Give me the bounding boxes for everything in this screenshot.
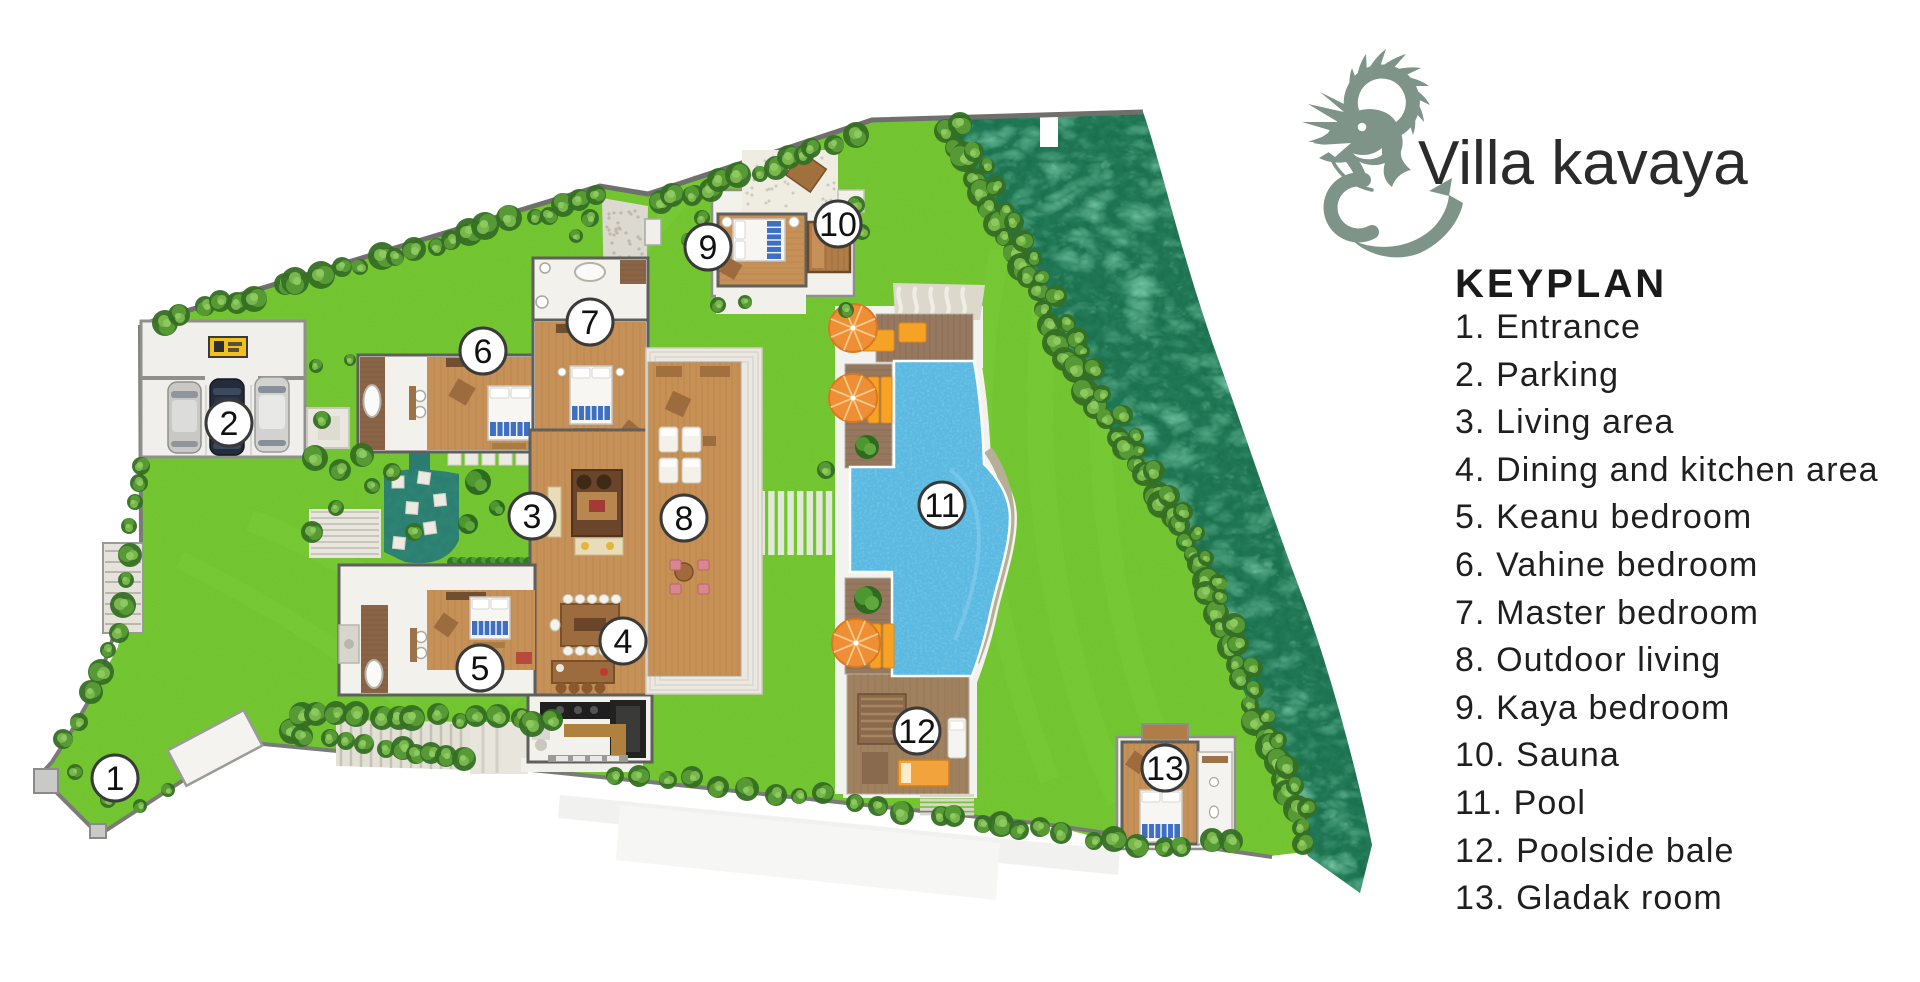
svg-text:4. Dining and kitchen area: 4. Dining and kitchen area [1455, 451, 1879, 489]
svg-text:1: 1 [106, 760, 125, 798]
svg-text:12: 12 [898, 713, 936, 751]
svg-text:11: 11 [924, 487, 959, 525]
svg-text:5. Keanu bedroom: 5. Keanu bedroom [1455, 498, 1752, 536]
svg-text:10. Sauna: 10. Sauna [1455, 736, 1620, 774]
svg-text:4: 4 [614, 623, 633, 661]
svg-text:3. Living area: 3. Living area [1455, 403, 1675, 441]
svg-text:12. Poolside bale: 12. Poolside bale [1455, 832, 1735, 870]
svg-text:KEYPLAN: KEYPLAN [1455, 262, 1667, 306]
svg-text:1. Entrance: 1. Entrance [1455, 308, 1641, 346]
svg-text:Villa kavaya: Villa kavaya [1418, 129, 1748, 198]
svg-text:5: 5 [471, 650, 490, 688]
svg-text:3: 3 [523, 498, 542, 536]
svg-text:8: 8 [675, 500, 694, 538]
svg-text:6: 6 [474, 333, 493, 371]
svg-text:8. Outdoor living: 8. Outdoor living [1455, 641, 1721, 679]
svg-text:11. Pool: 11. Pool [1455, 784, 1586, 822]
svg-text:9: 9 [699, 229, 718, 267]
svg-text:10: 10 [819, 206, 857, 244]
svg-text:13. Gladak room: 13. Gladak room [1455, 879, 1723, 917]
svg-text:2: 2 [220, 405, 239, 443]
svg-text:7. Master bedroom: 7. Master bedroom [1455, 594, 1759, 632]
svg-text:9. Kaya bedroom: 9. Kaya bedroom [1455, 689, 1730, 727]
svg-text:6. Vahine bedroom: 6. Vahine bedroom [1455, 546, 1758, 584]
svg-text:7: 7 [581, 304, 600, 342]
svg-text:13: 13 [1146, 750, 1184, 788]
svg-text:2. Parking: 2. Parking [1455, 356, 1619, 394]
